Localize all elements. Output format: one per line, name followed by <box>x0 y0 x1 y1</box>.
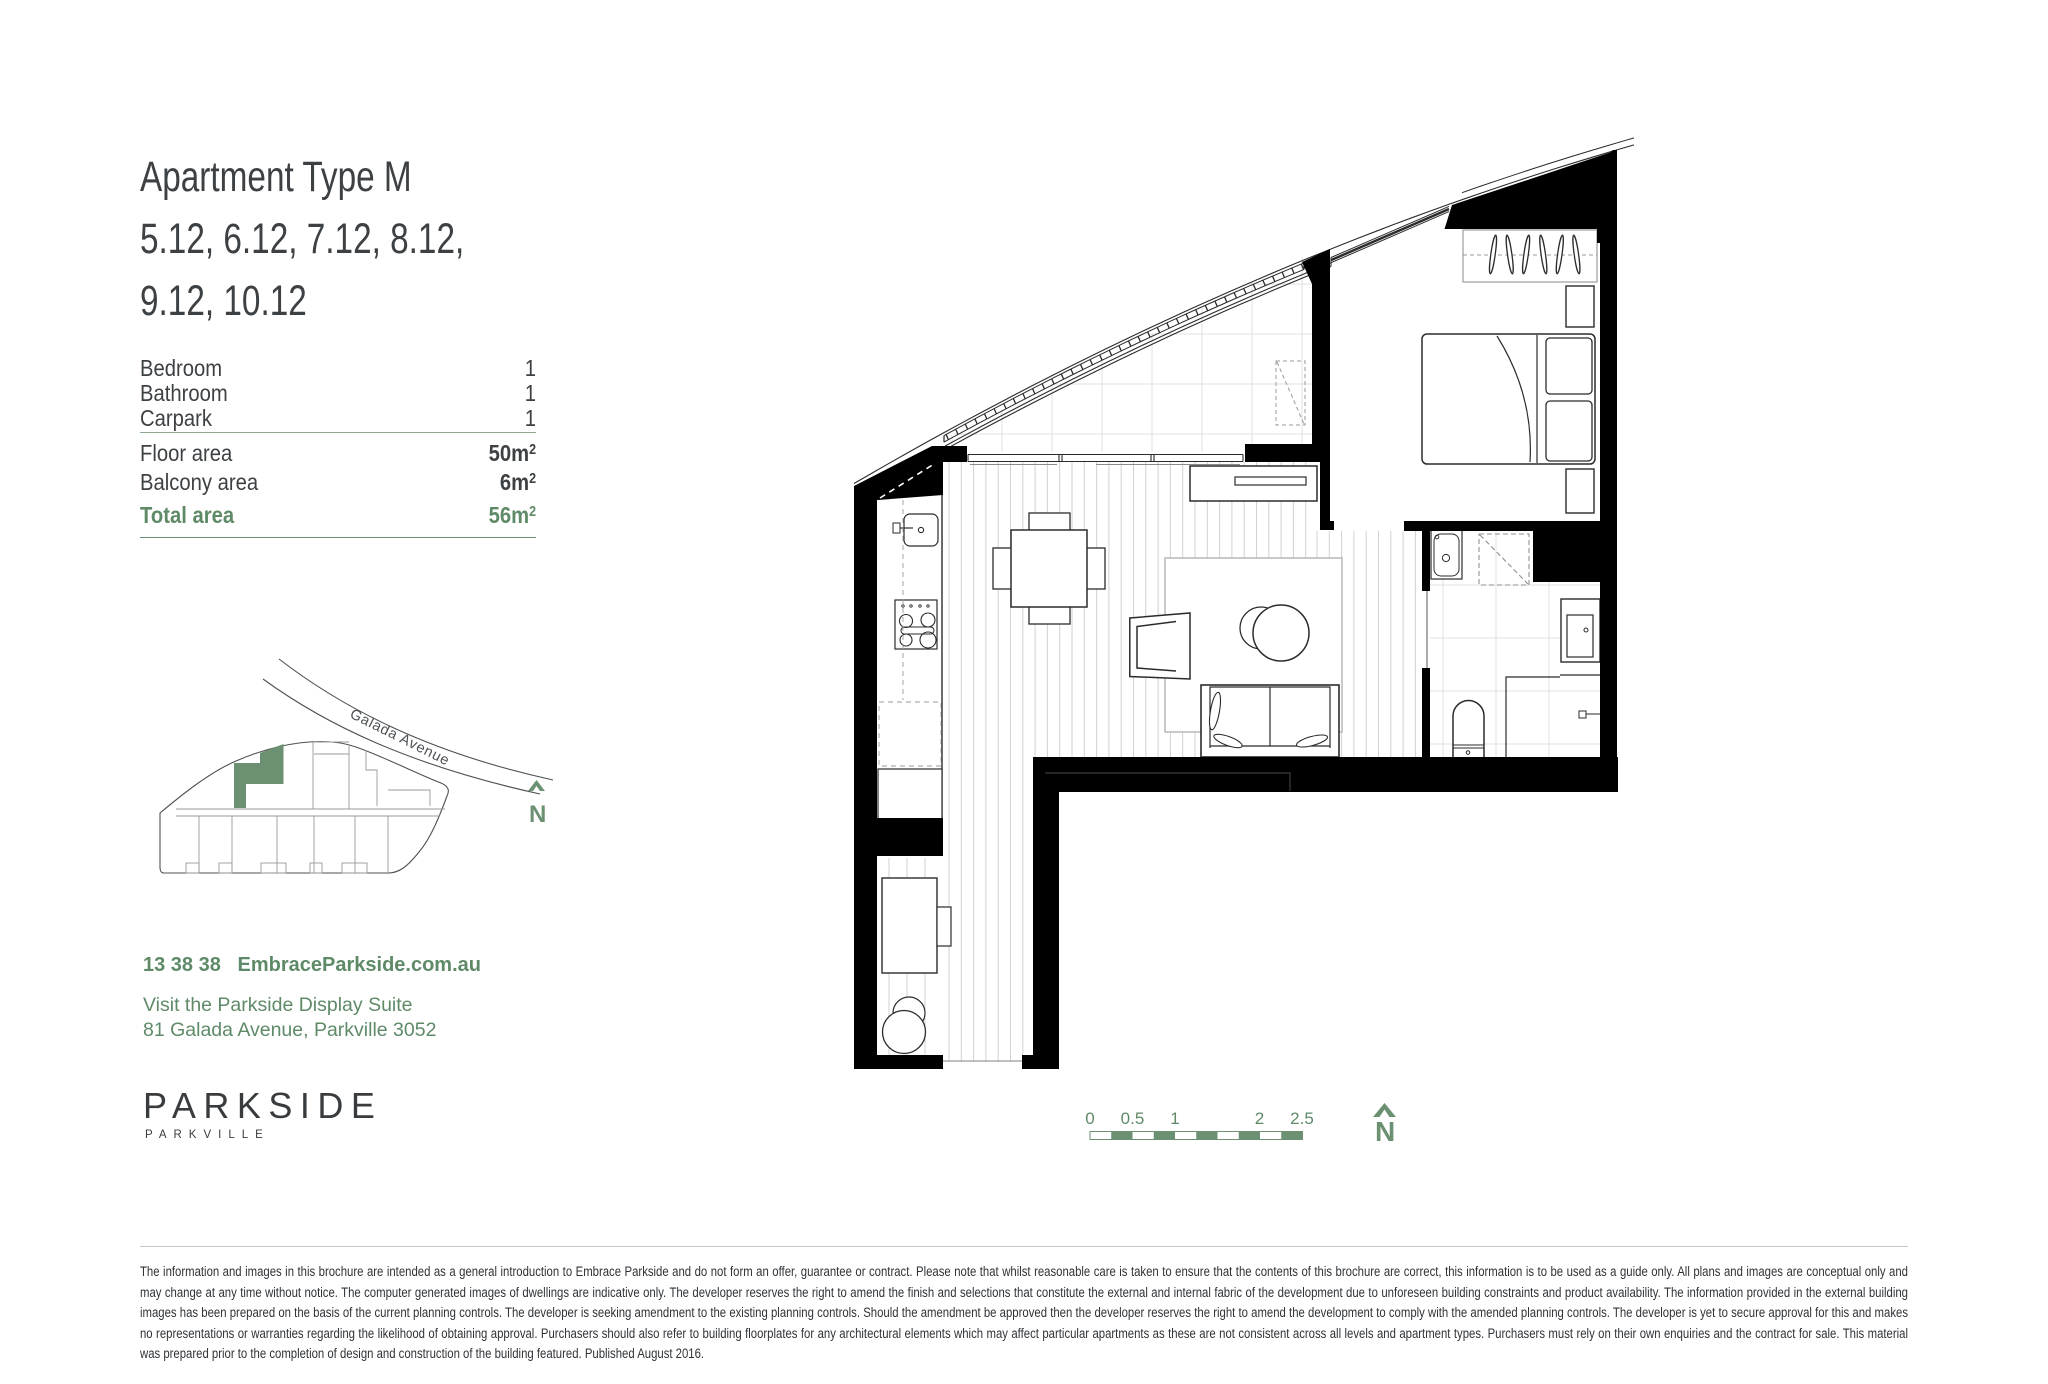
svg-text:N: N <box>1375 1116 1395 1147</box>
svg-text:0.5: 0.5 <box>1121 1109 1145 1128</box>
svg-text:Galada Avenue: Galada Avenue <box>347 706 452 769</box>
svg-text:1: 1 <box>1170 1109 1179 1128</box>
svg-text:2.5: 2.5 <box>1290 1109 1314 1128</box>
svg-text:N: N <box>529 801 546 828</box>
svg-text:0: 0 <box>1085 1109 1094 1128</box>
svg-text:2: 2 <box>1255 1109 1264 1128</box>
